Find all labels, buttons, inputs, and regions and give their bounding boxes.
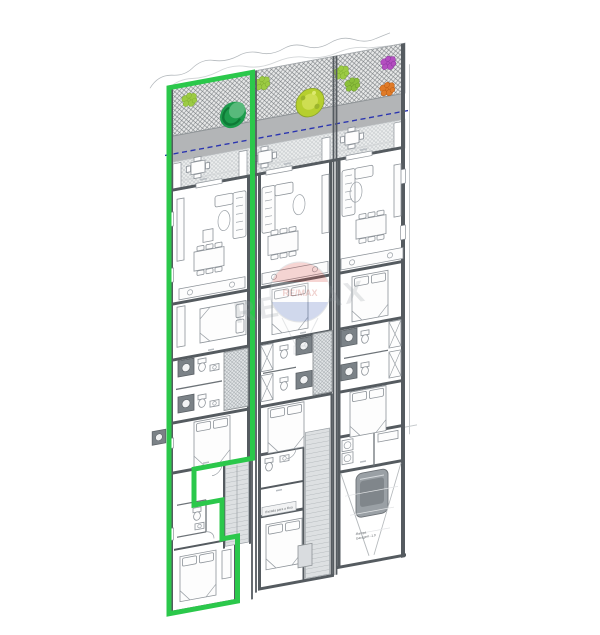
armchair [203, 229, 213, 243]
shower [341, 362, 357, 381]
planter [322, 137, 330, 162]
bed [266, 518, 302, 570]
toilet [198, 394, 206, 408]
closet [389, 320, 401, 348]
dryer [342, 452, 353, 465]
closet [389, 350, 401, 378]
wardrobe [177, 306, 185, 347]
cabinet [177, 198, 184, 261]
shaft-hatched [224, 348, 248, 410]
sink [280, 455, 289, 463]
rug [218, 209, 230, 231]
planter [394, 122, 402, 149]
bed [350, 386, 386, 438]
shower [341, 328, 357, 347]
sofa [342, 165, 373, 217]
balloon-text: RE/MAX [282, 288, 317, 298]
planter [239, 150, 247, 177]
toilet [361, 362, 369, 376]
counter [378, 430, 398, 442]
dining-table [268, 226, 298, 261]
bed [268, 402, 304, 454]
utility-shaft [298, 543, 312, 568]
closet [261, 344, 273, 372]
unit-middle-interior: Escada para a Rua [261, 174, 332, 587]
garage-ramp: Rampa Garagem -1.0 [341, 463, 401, 561]
toilet [361, 330, 369, 344]
rug [293, 194, 305, 216]
closet [261, 374, 273, 402]
sink [210, 363, 219, 371]
toilet [280, 345, 288, 359]
sofa [215, 190, 246, 242]
sink [195, 522, 204, 530]
bed [180, 550, 216, 602]
bed [194, 415, 230, 467]
shower [152, 429, 166, 445]
sink [210, 399, 219, 407]
shower [178, 394, 194, 413]
site-plan-svg: Escada para a Rua [0, 0, 600, 635]
shower [296, 370, 312, 389]
toilet [265, 458, 273, 472]
toilet [198, 358, 206, 372]
cabinet [394, 164, 401, 217]
dining-table [194, 242, 224, 277]
toilet [280, 377, 288, 391]
planter [173, 163, 181, 190]
toilet [193, 507, 201, 521]
floor-plan-screenshot: Escada para a Rua [0, 0, 600, 635]
washer [342, 439, 353, 452]
shaft-hatched [313, 331, 332, 396]
dining-table [356, 210, 386, 245]
car-roof [360, 477, 384, 507]
shower [178, 358, 194, 377]
unit-right-interior: Rampa Garagem -1.0 [341, 159, 403, 560]
wardrobe [222, 549, 231, 579]
sofa [262, 182, 293, 234]
cabinet [322, 174, 329, 233]
